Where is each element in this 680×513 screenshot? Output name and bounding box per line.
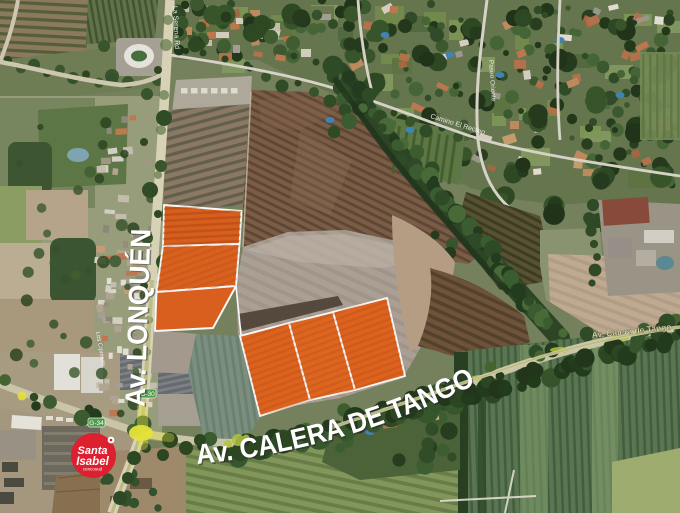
svg-text:G-34: G-34 (89, 420, 104, 427)
svg-text:Av. LONQUÉN: Av. LONQUÉN (120, 228, 157, 407)
svg-text:cencosud: cencosud (83, 467, 103, 472)
